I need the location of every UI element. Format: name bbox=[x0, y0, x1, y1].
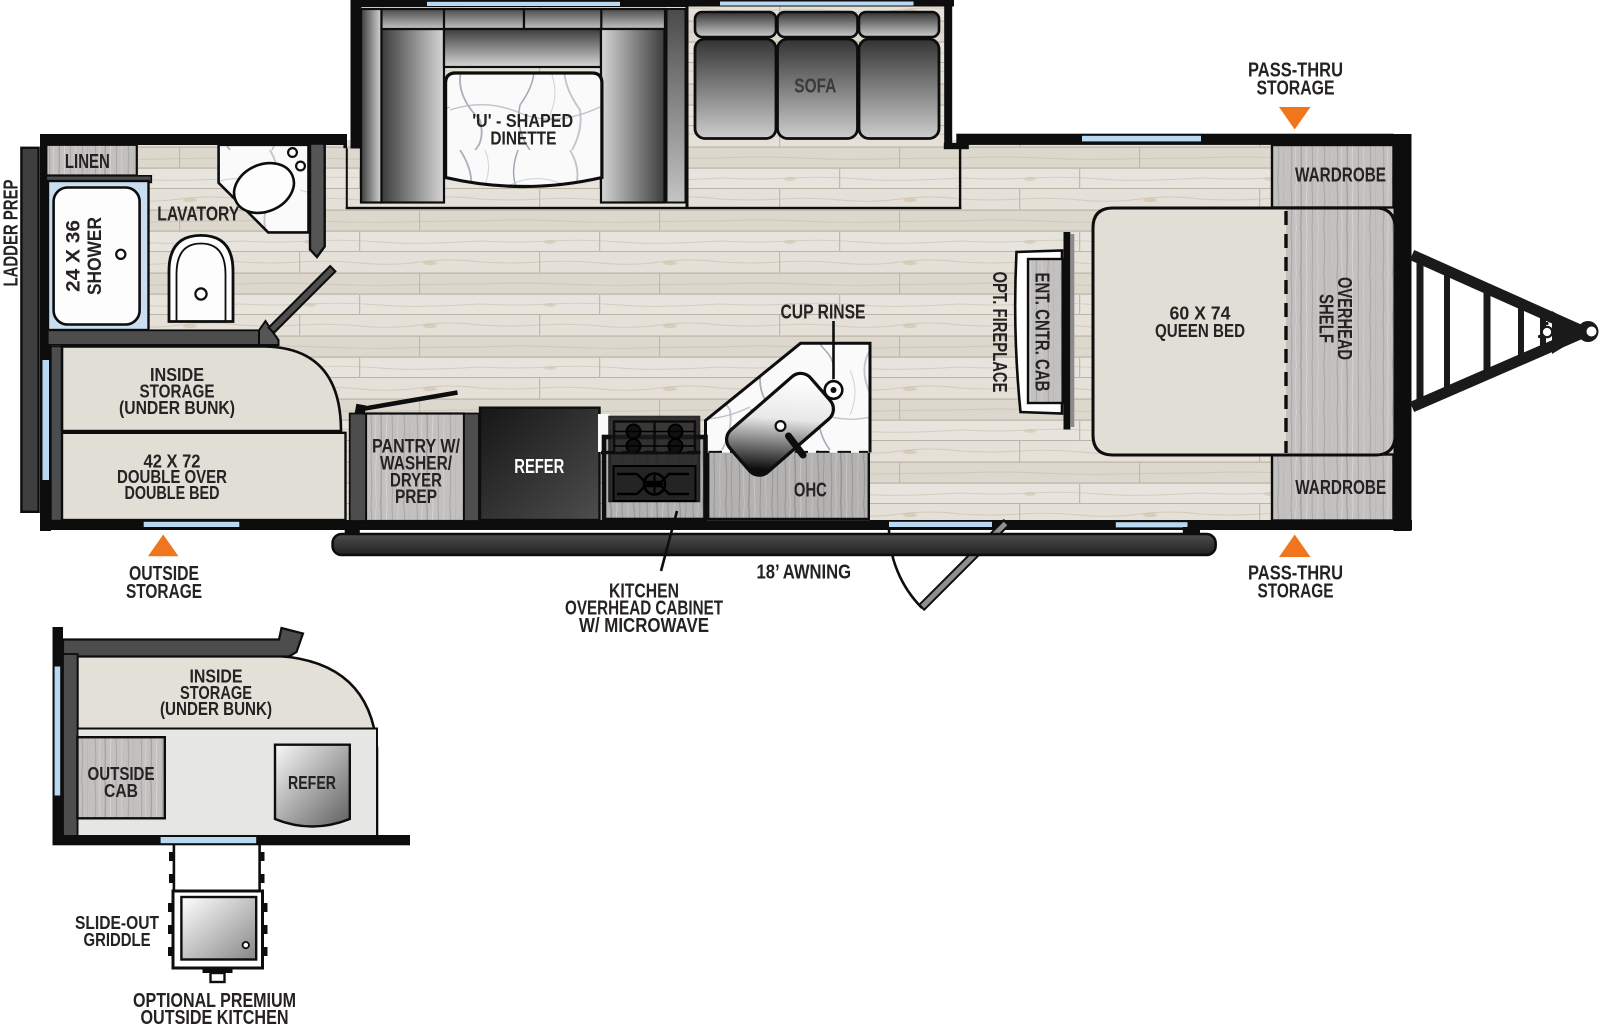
svg-text:24 X 36: 24 X 36 bbox=[64, 220, 85, 292]
svg-text:CAB: CAB bbox=[104, 780, 138, 801]
svg-text:OPT. FIREPLACE: OPT. FIREPLACE bbox=[988, 272, 1010, 393]
svg-text:CUP RINSE: CUP RINSE bbox=[781, 302, 866, 324]
svg-text:SHOWER: SHOWER bbox=[85, 217, 106, 295]
svg-text:(UNDER BUNK): (UNDER BUNK) bbox=[119, 397, 235, 418]
svg-text:PREP: PREP bbox=[395, 487, 437, 508]
svg-text:18’ AWNING: 18’ AWNING bbox=[757, 562, 852, 584]
svg-text:WARDROBE: WARDROBE bbox=[1295, 165, 1386, 187]
svg-text:STORAGE: STORAGE bbox=[126, 580, 202, 603]
svg-text:LADDER PREP: LADDER PREP bbox=[1, 180, 23, 287]
svg-text:OHC: OHC bbox=[794, 480, 827, 502]
svg-text:W/ MICROWAVE: W/ MICROWAVE bbox=[579, 615, 709, 637]
svg-text:(UNDER BUNK): (UNDER BUNK) bbox=[160, 698, 272, 719]
svg-text:OUTSIDE KITCHEN: OUTSIDE KITCHEN bbox=[141, 1007, 289, 1027]
svg-text:GRIDDLE: GRIDDLE bbox=[84, 929, 151, 950]
svg-text:QUEEN BED: QUEEN BED bbox=[1155, 321, 1245, 341]
svg-text:STORAGE: STORAGE bbox=[1258, 580, 1334, 603]
svg-text:LINEN: LINEN bbox=[65, 151, 110, 173]
svg-text:REFER: REFER bbox=[514, 456, 564, 478]
svg-text:DINETTE: DINETTE bbox=[490, 129, 556, 149]
svg-text:ENT. CNTR. CAB: ENT. CNTR. CAB bbox=[1031, 273, 1053, 392]
svg-text:SHELF: SHELF bbox=[1315, 294, 1337, 343]
svg-text:STORAGE: STORAGE bbox=[1257, 77, 1335, 100]
svg-text:LAVATORY: LAVATORY bbox=[157, 204, 240, 226]
svg-text:SOFA: SOFA bbox=[794, 76, 836, 98]
svg-text:DOUBLE BED: DOUBLE BED bbox=[125, 482, 220, 503]
svg-text:REFER: REFER bbox=[288, 772, 336, 793]
svg-text:WARDROBE: WARDROBE bbox=[1295, 477, 1386, 499]
